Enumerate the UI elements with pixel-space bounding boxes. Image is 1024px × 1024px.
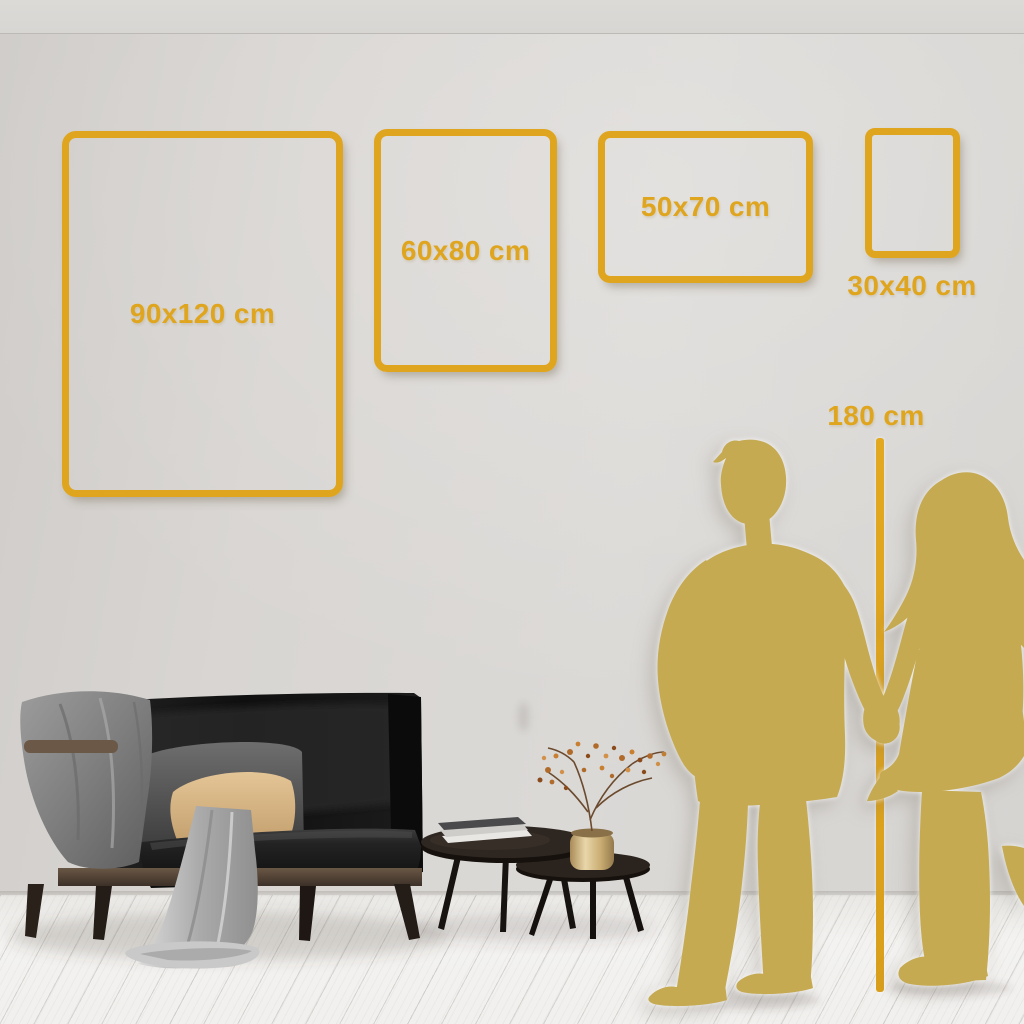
height-marker-line xyxy=(876,438,884,992)
size-label-30x40: 30x40 cm xyxy=(832,270,992,302)
size-frame-90x120: 90x120 cm xyxy=(62,131,343,497)
wall-smudge xyxy=(518,702,529,732)
size-label-90x120: 90x120 cm xyxy=(130,298,275,330)
poster-size-guide-scene: 90x120 cm 60x80 cm 50x70 cm 30x40 cm 180… xyxy=(0,0,1024,1024)
wall-floor-junction xyxy=(0,891,1024,897)
size-label-50x70: 50x70 cm xyxy=(641,191,770,223)
size-label-60x80: 60x80 cm xyxy=(401,235,530,267)
wood-floor xyxy=(0,895,1024,1024)
ceiling xyxy=(0,0,1024,34)
size-frame-50x70: 50x70 cm xyxy=(598,131,813,283)
height-marker-label: 180 cm xyxy=(796,400,956,432)
size-frame-60x80: 60x80 cm xyxy=(374,129,557,372)
size-frame-30x40 xyxy=(865,128,960,258)
